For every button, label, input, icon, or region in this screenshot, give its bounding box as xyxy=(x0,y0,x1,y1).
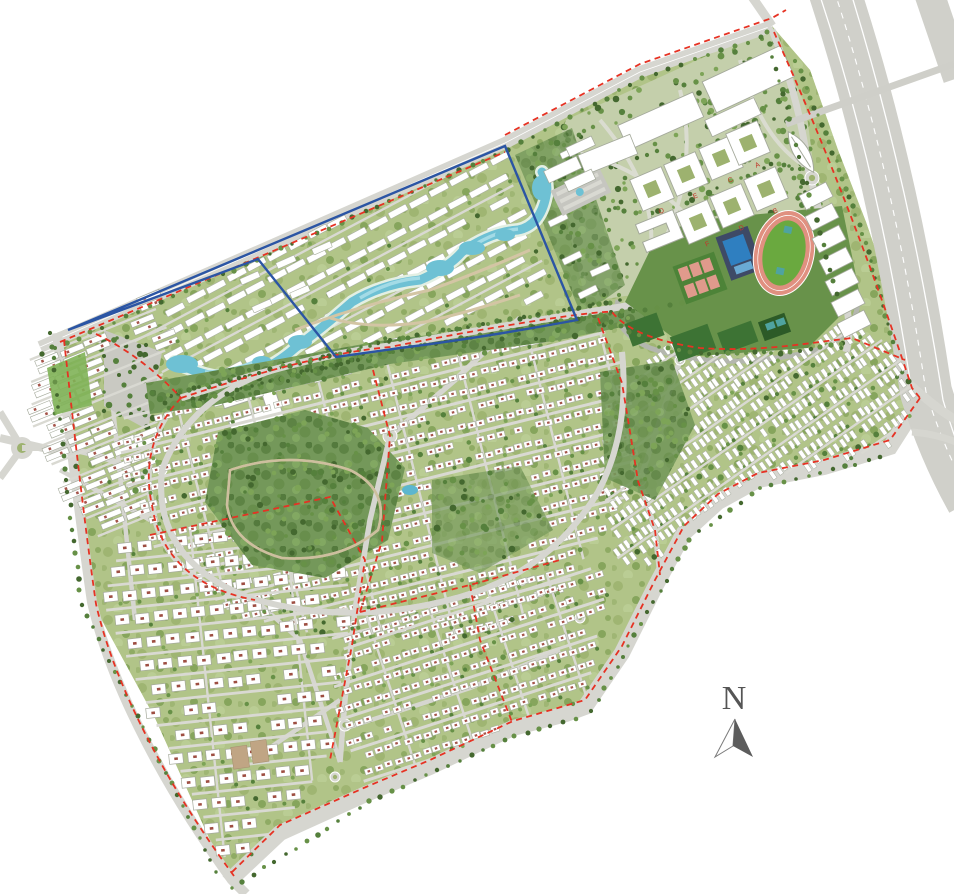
svg-text:N: N xyxy=(722,680,747,717)
